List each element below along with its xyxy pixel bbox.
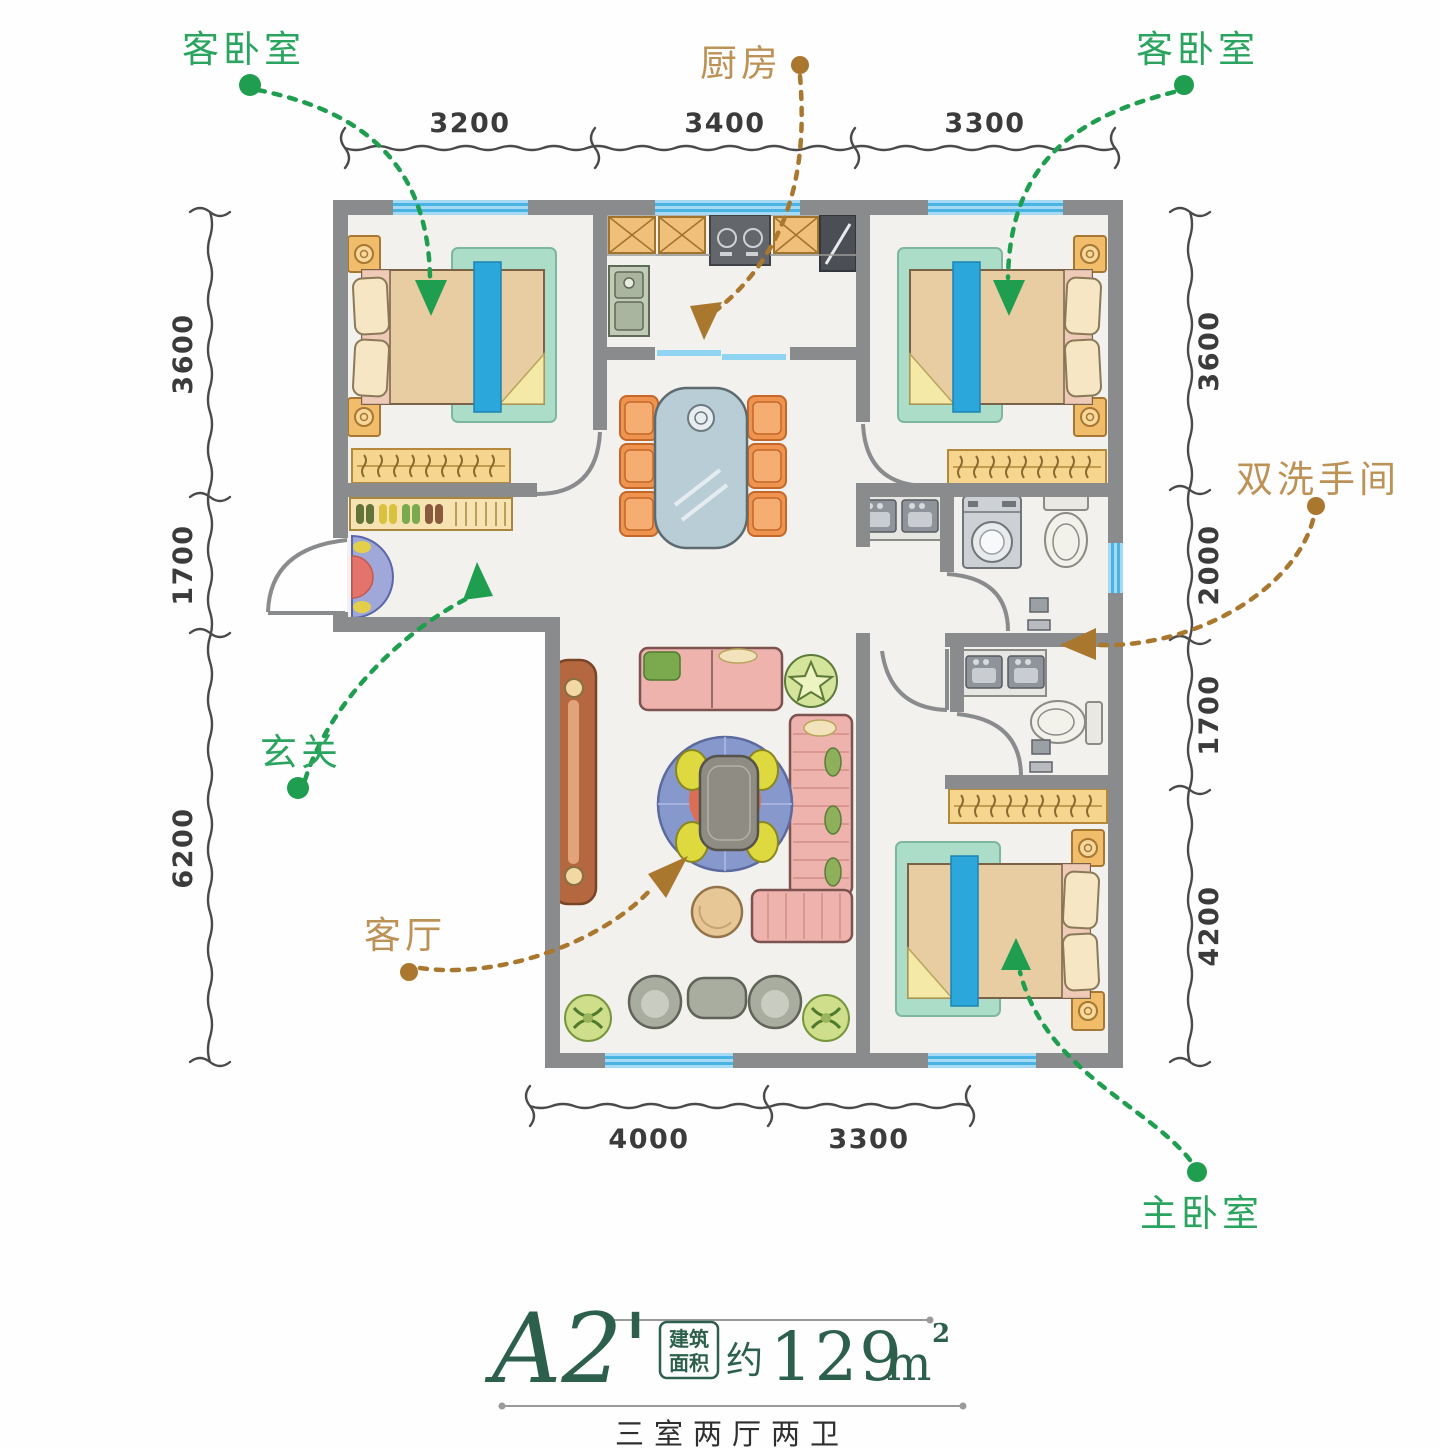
dim-right-3: 1700 bbox=[1194, 674, 1225, 755]
mop-sink-icon bbox=[1030, 598, 1048, 612]
area-label-line1: 建筑 bbox=[669, 1327, 709, 1351]
window bbox=[393, 200, 528, 215]
plant-icon bbox=[565, 995, 611, 1041]
dining-chair-icon bbox=[748, 396, 786, 440]
washbasin-icon bbox=[902, 500, 938, 532]
title-block: A2' 建筑 面积 约 129 m 2 三室两厅两卫 bbox=[484, 1293, 967, 1448]
room-label-guest-bedroom-right: 客卧室 bbox=[1136, 28, 1259, 71]
sofa-icon bbox=[640, 648, 782, 710]
dim-bottom-2: 3300 bbox=[828, 1124, 909, 1155]
dining-chair-icon bbox=[748, 444, 786, 488]
mop-sink-icon bbox=[1030, 762, 1052, 772]
approx-prefix: 约 bbox=[726, 1339, 763, 1382]
dim-right-1: 3600 bbox=[1194, 310, 1225, 391]
dim-bottom-1: 4000 bbox=[608, 1124, 689, 1155]
washbasin-icon bbox=[1008, 656, 1044, 688]
room-label-guest-bedroom-left: 客卧室 bbox=[182, 28, 305, 71]
dining-area bbox=[620, 388, 786, 548]
wardrobe-icon bbox=[352, 449, 510, 483]
window bbox=[1108, 543, 1123, 593]
dim-left-2: 1700 bbox=[168, 524, 199, 605]
mop-sink-icon bbox=[1032, 740, 1050, 754]
unit-name: A2' bbox=[484, 1293, 649, 1405]
room-label-master-bedroom: 主卧室 bbox=[1140, 1192, 1263, 1235]
leader-dot bbox=[1187, 1162, 1207, 1182]
plant-icon bbox=[803, 995, 849, 1041]
layout-type: 三室两厅两卫 bbox=[615, 1417, 849, 1448]
dim-left-1: 3600 bbox=[168, 313, 199, 394]
sliding-door bbox=[657, 350, 721, 356]
toilet-icon bbox=[1031, 701, 1102, 744]
area-unit: m bbox=[886, 1336, 932, 1392]
shoe-cabinet-icon bbox=[350, 498, 512, 530]
room-label-double-bathroom: 双洗手间 bbox=[1236, 458, 1400, 501]
dim-top-1: 3200 bbox=[429, 108, 510, 139]
room-label-living-room: 客厅 bbox=[364, 914, 446, 957]
washing-machine-icon bbox=[963, 496, 1021, 568]
dining-chair-icon bbox=[620, 492, 658, 536]
entry-door-arc bbox=[268, 540, 347, 612]
dim-right-4: 4200 bbox=[1194, 885, 1225, 966]
sliding-door bbox=[722, 354, 786, 360]
toilet-icon bbox=[1044, 494, 1088, 567]
dimension-top: 3200 3400 3300 bbox=[341, 108, 1119, 168]
dining-chair-icon bbox=[620, 444, 658, 488]
room-label-kitchen: 厨房 bbox=[700, 42, 782, 85]
leader-dot bbox=[400, 963, 418, 981]
leader-dot bbox=[287, 777, 309, 799]
window bbox=[928, 200, 1063, 215]
dining-table-icon bbox=[655, 388, 747, 548]
bed-icon bbox=[348, 236, 556, 436]
leader-dot bbox=[239, 74, 261, 96]
bed-icon bbox=[898, 236, 1106, 436]
area-exponent: 2 bbox=[932, 1319, 950, 1349]
dim-right-2: 2000 bbox=[1194, 524, 1225, 605]
floor-plan-canvas: 3200 3400 3300 3600 1700 6200 3600 2000 … bbox=[0, 0, 1440, 1448]
dimension-bottom: 4000 3300 bbox=[526, 1086, 974, 1155]
area-value: 129 bbox=[770, 1318, 904, 1396]
floor-plan-page: 3200 3400 3300 3600 1700 6200 3600 2000 … bbox=[0, 0, 1440, 1448]
washbasin-icon bbox=[966, 656, 1002, 688]
leader-dot bbox=[1174, 75, 1194, 95]
window bbox=[655, 200, 800, 215]
room-label-entrance: 玄关 bbox=[260, 731, 342, 774]
window bbox=[928, 1053, 1036, 1068]
dimension-left: 3600 1700 6200 bbox=[168, 208, 230, 1066]
coffee-table-icon bbox=[700, 756, 758, 850]
window bbox=[605, 1053, 733, 1068]
area-label-line2: 面积 bbox=[669, 1351, 709, 1375]
wardrobe-icon bbox=[948, 450, 1106, 484]
dim-left-3: 6200 bbox=[168, 807, 199, 888]
dim-top-2: 3400 bbox=[684, 108, 765, 139]
bed-icon bbox=[896, 830, 1104, 1030]
stove-icon bbox=[710, 215, 770, 265]
fridge-icon bbox=[820, 215, 856, 271]
dimension-right: 3600 2000 1700 4200 bbox=[1170, 208, 1225, 1066]
dining-chair-icon bbox=[620, 396, 658, 440]
dim-top-3: 3300 bbox=[944, 108, 1025, 139]
mop-sink-icon bbox=[1028, 620, 1050, 630]
dining-chair-icon bbox=[748, 492, 786, 536]
kitchen-sink-icon bbox=[609, 266, 649, 336]
wardrobe-icon bbox=[949, 789, 1107, 823]
leader-dot bbox=[791, 56, 809, 74]
